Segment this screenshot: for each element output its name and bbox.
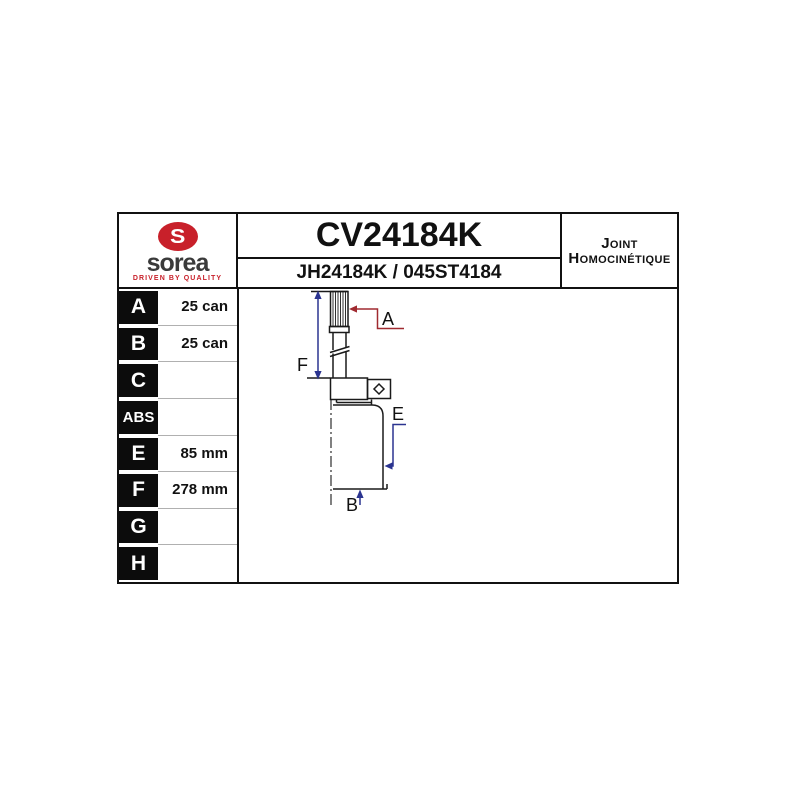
bell-bottom [333, 484, 387, 489]
joint-housing [331, 378, 368, 400]
title-cell: CV24184K JH24184K / 045ST4184 [238, 214, 562, 287]
row-label-a: A [119, 291, 158, 324]
row-label-c: C [119, 364, 158, 397]
row-label-abs: ABS [119, 401, 158, 434]
row-label-e: E [119, 438, 158, 471]
logo-cell: S sorea DRIVEN BY QUALITY [119, 214, 238, 287]
table-row-c: C [119, 362, 237, 399]
table-row-a: A 25 can [119, 289, 237, 326]
reference-numbers: JH24184K / 045ST4184 [238, 259, 560, 287]
row-label-f: F [119, 474, 158, 507]
brand-name: sorea [147, 252, 209, 274]
product-sheet: F A E B [117, 212, 679, 584]
row-value-g [158, 509, 237, 546]
spline-hatch [333, 292, 346, 326]
row-value-f: 278 mm [158, 472, 237, 509]
table-row-f: F 278 mm [119, 472, 237, 509]
row-value-abs [158, 399, 237, 436]
product-type-line2: Homocinétique [568, 251, 670, 266]
table-row-b: B 25 can [119, 326, 237, 363]
part-number: CV24184K [238, 214, 560, 259]
mount-bracket [368, 380, 391, 399]
dimension-f: F [297, 291, 322, 380]
spec-table: A 25 can B 25 can C ABS E 85 mm F 278 mm [119, 289, 239, 582]
row-value-h [158, 545, 237, 582]
dimension-e: E [385, 404, 407, 470]
dimension-label-a: A [382, 309, 394, 329]
logo-monogram: S [170, 227, 185, 247]
shaft-collar [330, 327, 350, 333]
row-label-b: B [119, 328, 158, 361]
table-row-g: G [119, 509, 237, 546]
dimension-b: B [346, 490, 364, 516]
header: S sorea DRIVEN BY QUALITY CV24184K JH241… [119, 214, 677, 289]
row-label-h: H [119, 547, 158, 580]
dimension-label-f: F [297, 355, 308, 375]
page-background: F A E B [0, 0, 800, 800]
dimension-label-e: E [392, 404, 404, 424]
bracket-hole-diamond [374, 384, 384, 394]
product-type-line1: Joint [601, 236, 638, 251]
row-value-c [158, 362, 237, 399]
table-row-abs: ABS [119, 399, 237, 436]
brand-tagline: DRIVEN BY QUALITY [133, 275, 222, 282]
dimension-a: A [349, 305, 404, 329]
bell-housing [333, 405, 383, 489]
product-type-cell: Joint Homocinétique [562, 214, 677, 287]
neck-step [337, 400, 372, 406]
row-label-g: G [119, 511, 158, 544]
table-row-e: E 85 mm [119, 436, 237, 473]
row-value-b: 25 can [158, 326, 237, 363]
row-value-e: 85 mm [158, 436, 237, 473]
sorea-logo-icon: S [158, 222, 198, 251]
row-value-a: 25 can [158, 289, 237, 326]
dimension-label-b: B [346, 495, 358, 515]
table-row-h: H [119, 545, 237, 582]
